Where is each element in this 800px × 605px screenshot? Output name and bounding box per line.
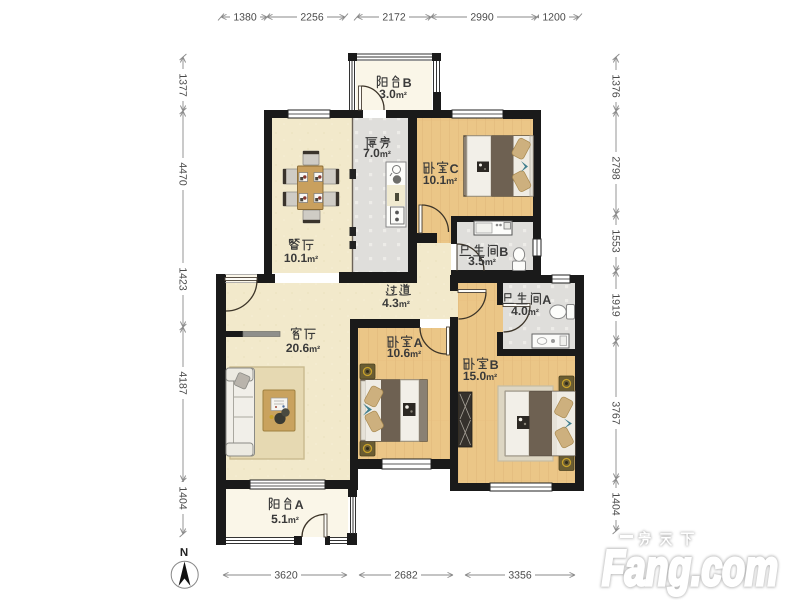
svg-text:A: A xyxy=(295,498,304,512)
svg-text:7.0m²: 7.0m² xyxy=(363,146,391,160)
svg-text:2990: 2990 xyxy=(470,12,494,24)
svg-text:B: B xyxy=(490,358,499,372)
svg-text:4470: 4470 xyxy=(177,162,189,186)
svg-text:3.0m²: 3.0m² xyxy=(379,87,407,101)
svg-text:10.1m²: 10.1m² xyxy=(284,251,318,265)
svg-text:15.0m²: 15.0m² xyxy=(463,369,497,383)
svg-text:20.6m²: 20.6m² xyxy=(286,341,320,355)
svg-text:1404: 1404 xyxy=(177,486,189,510)
svg-text:3.5m²: 3.5m² xyxy=(468,254,496,268)
svg-text:1423: 1423 xyxy=(177,267,189,291)
svg-text:1553: 1553 xyxy=(610,229,622,253)
svg-text:1377: 1377 xyxy=(177,73,189,97)
svg-text:4.3m²: 4.3m² xyxy=(382,296,410,310)
svg-text:3356: 3356 xyxy=(508,570,532,582)
svg-text:1200: 1200 xyxy=(542,12,566,24)
svg-text:C: C xyxy=(450,162,459,176)
svg-text:1919: 1919 xyxy=(610,293,622,317)
svg-text:5.1m²: 5.1m² xyxy=(271,512,299,526)
svg-text:Fang.com: Fang.com xyxy=(602,540,778,596)
svg-text:4187: 4187 xyxy=(177,371,189,395)
svg-text:10.1m²: 10.1m² xyxy=(423,173,457,187)
svg-text:2172: 2172 xyxy=(382,12,406,24)
svg-text:3620: 3620 xyxy=(274,570,298,582)
svg-text:A: A xyxy=(542,293,551,307)
svg-text:B: B xyxy=(403,76,412,90)
svg-text:N: N xyxy=(180,547,188,559)
svg-text:1380: 1380 xyxy=(233,12,257,24)
svg-text:2256: 2256 xyxy=(300,12,324,24)
svg-text:1376: 1376 xyxy=(610,74,622,98)
svg-text:3767: 3767 xyxy=(610,401,622,425)
svg-text:1404: 1404 xyxy=(610,492,622,516)
svg-text:2682: 2682 xyxy=(394,570,418,582)
svg-text:4.0m²: 4.0m² xyxy=(511,304,539,318)
svg-text:B: B xyxy=(499,245,508,259)
svg-text:2798: 2798 xyxy=(610,156,622,180)
svg-text:10.6m²: 10.6m² xyxy=(387,346,421,360)
svg-text:A: A xyxy=(414,336,423,350)
